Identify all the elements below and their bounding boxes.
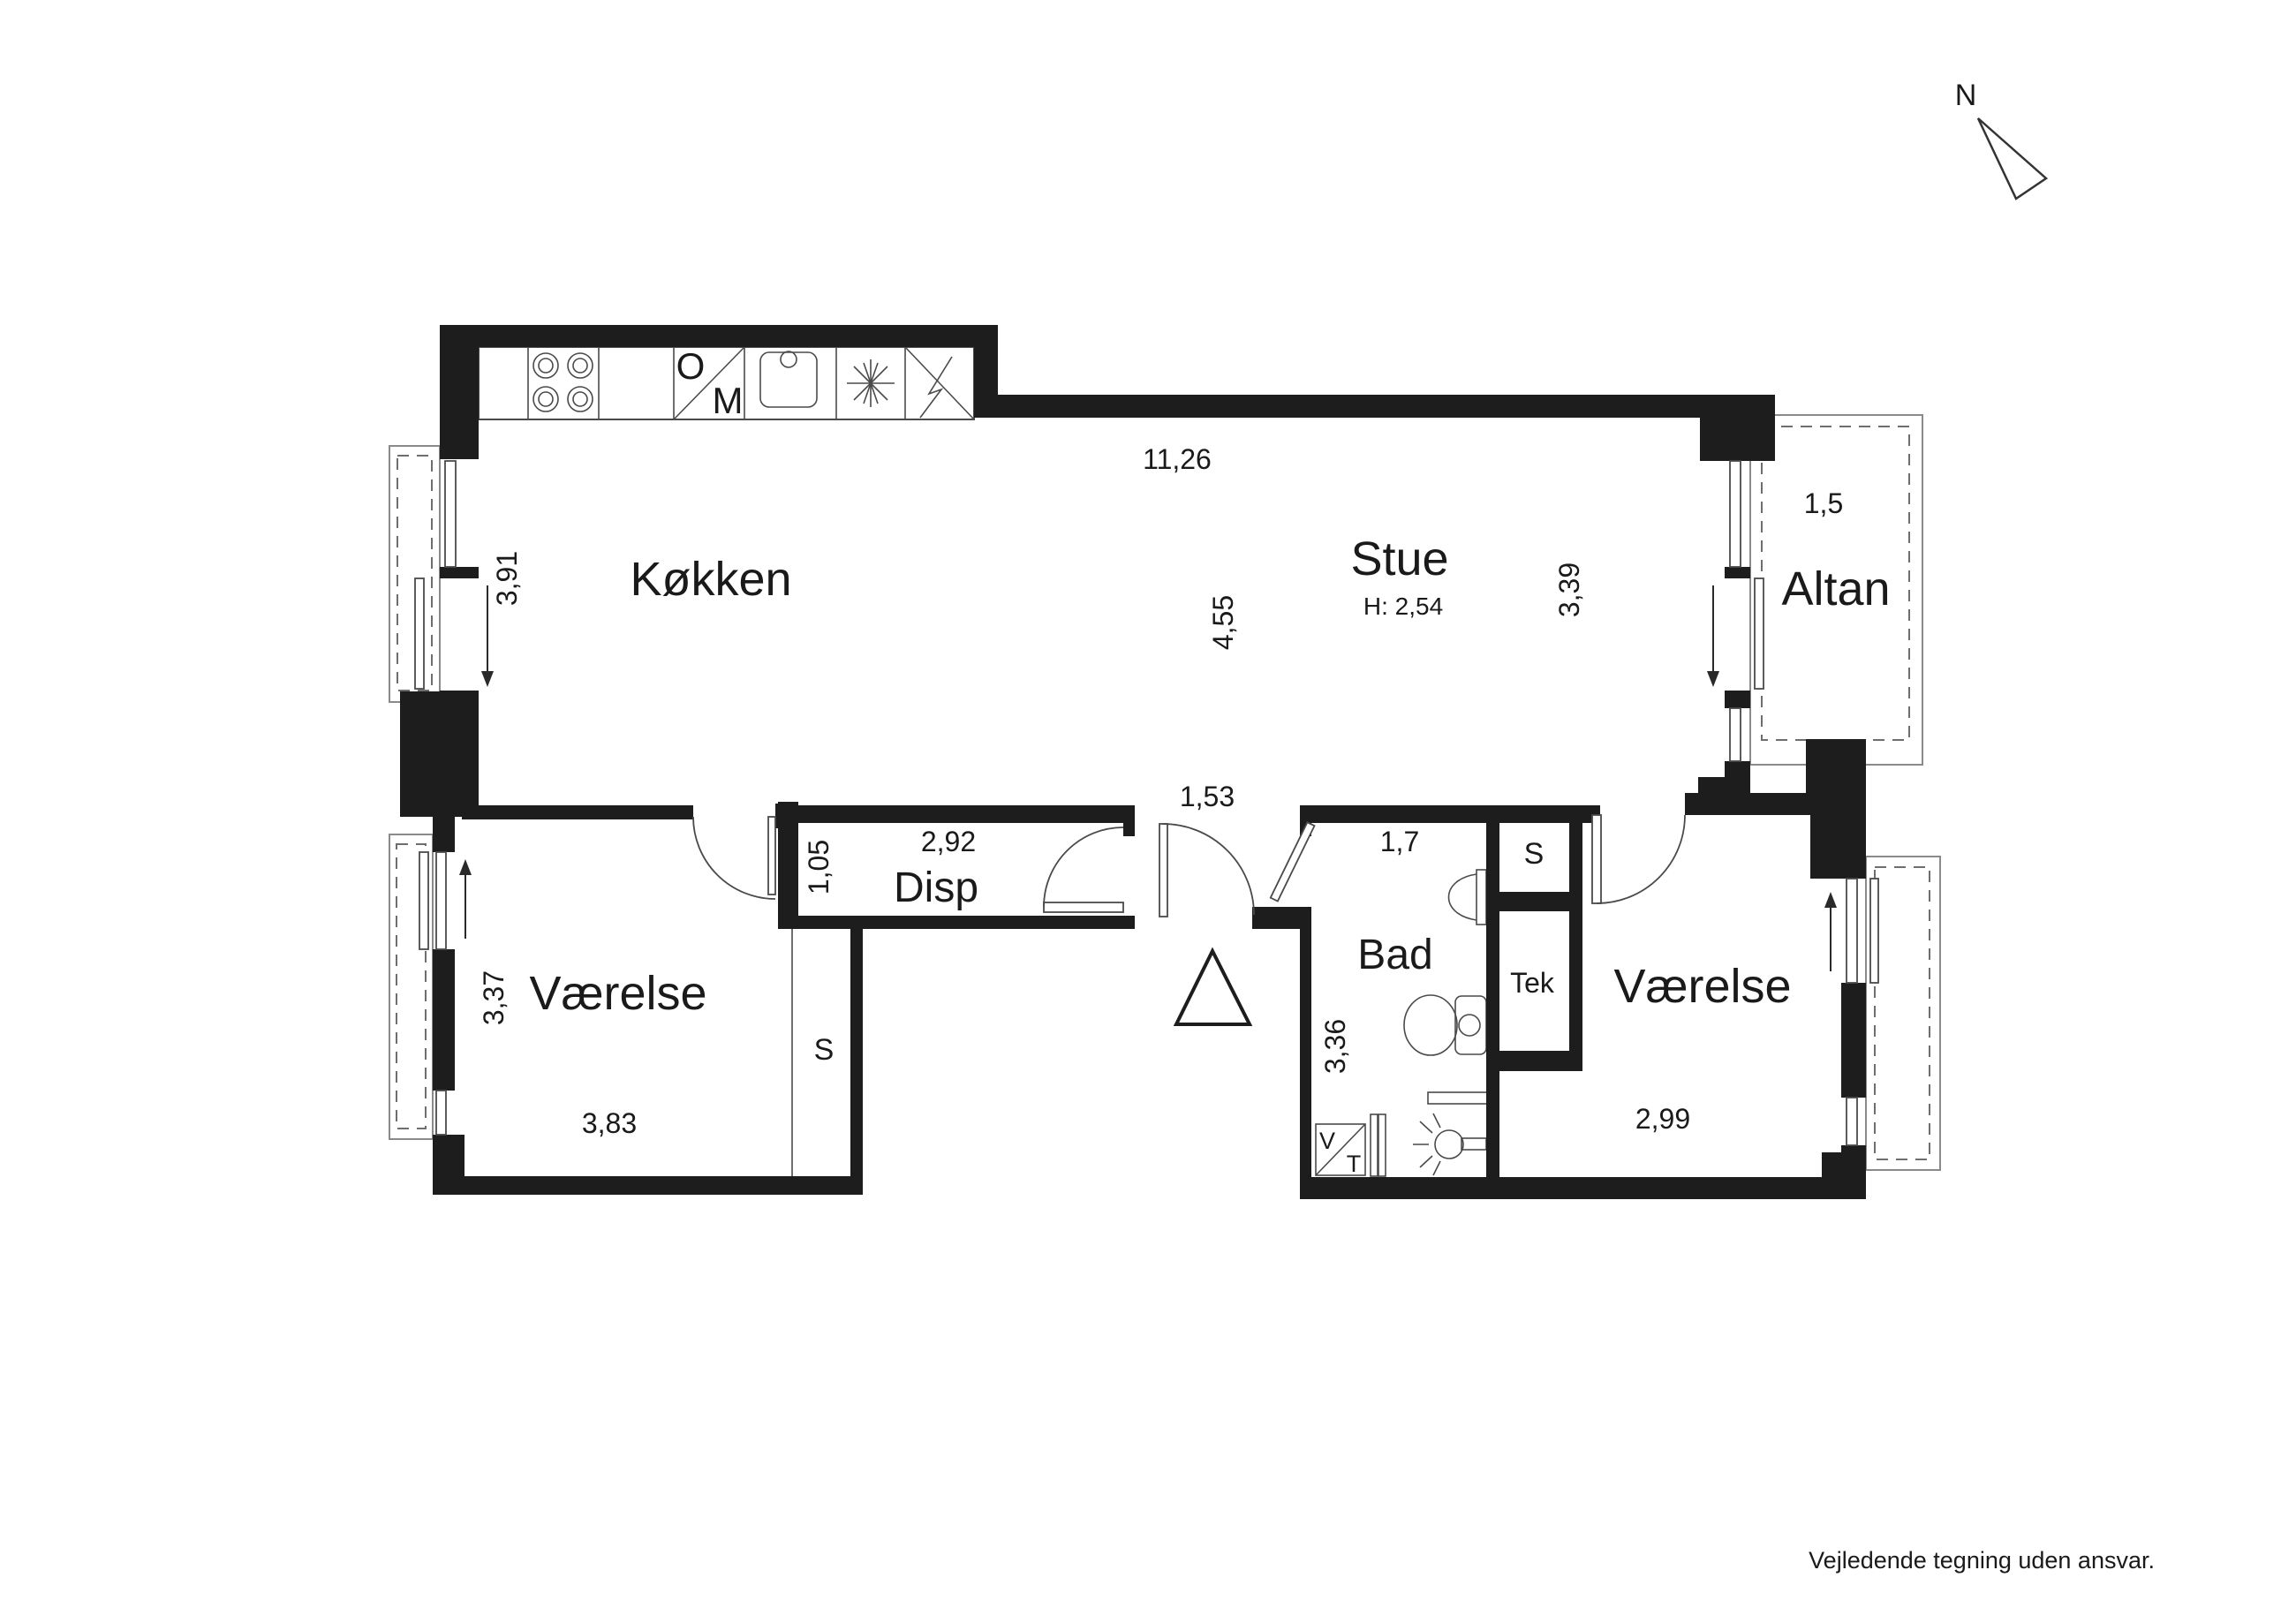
door-hall-stue (1159, 824, 1254, 917)
stove-icon (533, 353, 593, 411)
dishwasher-icon (905, 347, 974, 419)
north-arrow: N (1955, 79, 2046, 199)
room-label-disp: Disp (894, 864, 978, 911)
arrow-room-left-window (459, 859, 472, 939)
dim-stue-depth: 3,39 (1553, 562, 1585, 617)
north-label: N (1955, 79, 1977, 112)
dim-top-width: 11,26 (1143, 443, 1212, 475)
dim-room-left-depth: 3,37 (478, 970, 510, 1025)
room-left-window-1 (436, 852, 446, 949)
dim-stue-width: 4,55 (1207, 595, 1239, 650)
closet-label-left: S (814, 1033, 835, 1067)
washer-letter: V (1319, 1128, 1335, 1154)
dim-hall-opening: 1,53 (1180, 781, 1235, 812)
entrance-marker-triangle (1176, 951, 1250, 1024)
kitchen-counter: O M (479, 345, 974, 421)
stue-ceiling-height: H: 2,54 (1363, 593, 1443, 620)
radiator-icon (1371, 1114, 1386, 1176)
kitchen-window (445, 461, 456, 567)
dim-disp-depth: 1,05 (803, 840, 835, 895)
room-right-window-leaf (1870, 879, 1878, 983)
north-arrow-needle (1978, 118, 2046, 199)
microwave-letter: M (713, 380, 744, 421)
room-label-vaerelse-right: Værelse (1613, 960, 1791, 1013)
dim-room-left-width: 3,83 (582, 1107, 637, 1139)
dim-room-right-width: 2,99 (1635, 1103, 1690, 1135)
dimension-labels: 11,26 3,91 4,55 3,39 1,5 1,53 2,92 1,05 … (478, 443, 1843, 1139)
room-label-koekken: Køkken (630, 553, 791, 606)
closet-label-right: S (1524, 837, 1545, 871)
room-label-altan: Altan (1781, 562, 1890, 615)
altan-door-leaf (1755, 578, 1764, 689)
disclaimer-text: Vejledende tegning uden ansvar. (1809, 1547, 2155, 1574)
room-right-window-1 (1847, 879, 1857, 983)
floor-plan-page: O M (0, 0, 2296, 1623)
shower-icon (1413, 1113, 1486, 1175)
walls (400, 325, 1866, 1199)
dim-altan-depth: 1,5 (1804, 487, 1843, 519)
opening-arrows (459, 585, 1837, 971)
oven-letter: O (676, 345, 706, 387)
dim-disp-width: 2,92 (921, 826, 976, 857)
door-room-left (693, 817, 775, 899)
toilet-icon (1404, 995, 1486, 1055)
oven-microwave-icon: O M (674, 345, 744, 421)
washer-dryer-icon: V T (1316, 1124, 1365, 1177)
door-bad (1271, 822, 1315, 901)
room-label-tek: Tek (1510, 967, 1555, 999)
room-label-vaerelse-left: Værelse (529, 967, 706, 1020)
room-left-window-2 (436, 1091, 446, 1135)
dim-kitchen-depth: 3,91 (491, 551, 523, 606)
door-room-right (1592, 815, 1685, 903)
washbasin-icon (1449, 870, 1487, 925)
stue-window-upper (1730, 461, 1741, 567)
room-left-window-leaf (419, 852, 428, 949)
room-right-window-2 (1847, 1098, 1857, 1145)
room-label-bad: Bad (1357, 932, 1432, 978)
arrow-room-right-window (1824, 892, 1837, 971)
dim-bad-depth: 3,36 (1319, 1019, 1351, 1074)
floor-plan-canvas: O M (0, 0, 2296, 1623)
sink-icon (760, 351, 817, 407)
arrow-altan-door (1707, 585, 1719, 687)
stue-window-lower (1730, 708, 1741, 761)
dryer-letter: T (1347, 1151, 1362, 1177)
freezer-star-icon (847, 359, 895, 407)
towel-rail-icon (1428, 1092, 1488, 1104)
dim-bad-width: 1,7 (1380, 826, 1419, 857)
door-disp (1044, 827, 1123, 912)
room-label-stue: Stue (1350, 532, 1448, 585)
kitchen-balcony-door-leaf (415, 578, 424, 689)
